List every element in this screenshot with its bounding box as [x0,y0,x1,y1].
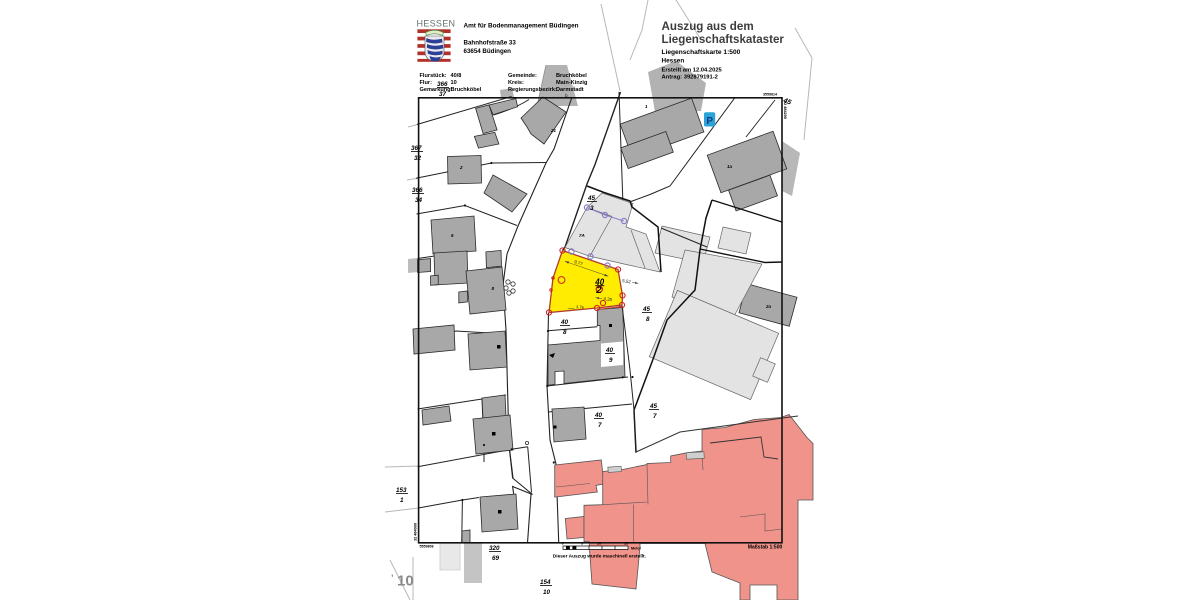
svg-text:7: 7 [653,413,657,420]
svg-text:40: 40 [594,412,603,419]
svg-text:1a: 1a [727,164,733,169]
svg-text:40: 40 [560,319,569,326]
svg-text:2a: 2a [765,304,772,309]
svg-text:3,76: 3,76 [576,304,585,310]
svg-text:154: 154 [540,579,551,586]
svg-text:Bruchköbel: Bruchköbel [451,87,482,93]
svg-text:’: ’ [391,573,394,583]
svg-text:367: 367 [411,145,422,152]
svg-text:32: 32 [414,155,422,162]
svg-text:3: 3 [590,205,594,212]
svg-text:45: 45 [649,403,658,410]
svg-text:Bahnhofstraße 33: Bahnhofstraße 33 [464,40,517,47]
svg-text:Regierungsbezirk:: Regierungsbezirk: [508,87,557,93]
svg-text:63654 Büdingen: 63654 Büdingen [464,48,512,55]
svg-text:Meter: Meter [631,547,642,551]
svg-text:34: 34 [415,197,423,204]
svg-text:Erstellt am 12.04.2025: Erstellt am 12.04.2025 [662,68,723,74]
svg-text:8: 8 [646,316,650,323]
svg-text:Bruchköbel: Bruchköbel [556,73,587,79]
svg-text:7A: 7A [579,233,585,238]
svg-text:Kreis:: Kreis: [508,80,524,86]
svg-text:Flur:: Flur: [420,80,433,86]
svg-text:1: 1 [400,497,404,504]
svg-text:Maßstab 1:500: Maßstab 1:500 [748,545,783,551]
svg-text:32 484000: 32 484000 [414,523,418,541]
svg-text:32 484200: 32 484200 [783,101,787,119]
svg-text:Auszug aus dem: Auszug aus dem [662,20,754,33]
svg-text:Antrag: 392879191-2: Antrag: 392879191-2 [662,74,718,80]
svg-text:320: 320 [489,545,500,552]
svg-text:Dieser Auszug wurde maschinell: Dieser Auszug wurde maschinell erstellt. [553,554,646,560]
svg-text:21: 21 [550,128,557,133]
svg-text:15: 15 [624,542,628,546]
svg-text:3559814: 3559814 [763,93,777,97]
svg-text:7: 7 [598,422,602,429]
svg-text:2: 2 [595,285,602,296]
svg-text:0: 0 [562,542,564,546]
svg-text:Main-Kinzig: Main-Kinzig [556,80,588,86]
svg-text:69: 69 [492,555,500,562]
svg-text:10: 10 [543,589,551,596]
svg-text:366: 366 [412,187,423,194]
svg-text:HESSEN: HESSEN [417,19,456,29]
svg-text:45: 45 [642,306,651,313]
svg-text:2: 2 [459,165,463,170]
svg-text:8: 8 [563,329,567,336]
svg-text:Hessen: Hessen [662,58,685,65]
svg-text:40/8: 40/8 [451,73,462,79]
svg-text:Gemeinde:: Gemeinde: [508,73,537,79]
svg-text:5559808: 5559808 [420,545,434,549]
svg-text:5: 5 [581,542,583,546]
svg-text:Flurstück:: Flurstück: [420,73,447,79]
svg-text:Liegenschaftskataster: Liegenschaftskataster [662,33,785,46]
svg-text:Liegenschaftskarte 1:500: Liegenschaftskarte 1:500 [662,49,741,56]
svg-text:10: 10 [597,542,601,546]
svg-text:10: 10 [451,80,457,86]
svg-text:Gemarkung:: Gemarkung: [420,87,453,93]
svg-text:9: 9 [609,357,613,364]
svg-text:Darmstadt: Darmstadt [556,87,584,93]
svg-text:10: 10 [397,573,414,590]
svg-text:P: P [706,116,713,127]
svg-text:45: 45 [587,195,596,202]
svg-text:Amt für Bodenmanagement Büding: Amt für Bodenmanagement Büdingen [464,23,579,30]
svg-text:153: 153 [396,487,407,494]
svg-text:40: 40 [605,347,614,354]
